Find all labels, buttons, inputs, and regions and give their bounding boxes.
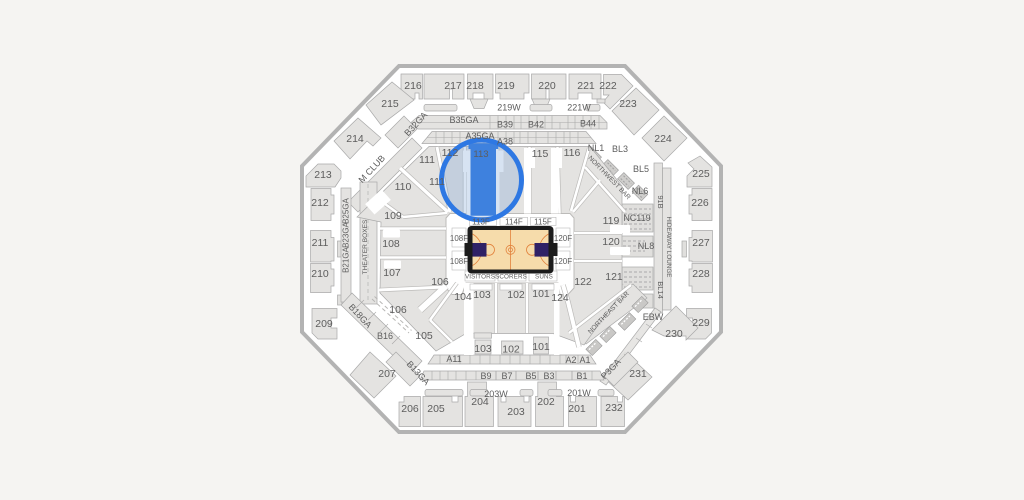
svg-text:108F: 108F (450, 234, 468, 243)
svg-text:207: 207 (378, 368, 396, 380)
svg-text:NC119: NC119 (623, 213, 650, 223)
svg-text:215: 215 (381, 98, 399, 110)
svg-text:106: 106 (389, 304, 407, 316)
svg-text:A11: A11 (446, 354, 461, 364)
svg-text:120F: 120F (554, 257, 572, 266)
svg-text:B21GA: B21GA (342, 246, 351, 272)
svg-text:229: 229 (692, 317, 710, 329)
svg-text:210: 210 (311, 268, 329, 280)
svg-text:111: 111 (429, 176, 445, 188)
svg-text:SUNS: SUNS (535, 274, 553, 281)
svg-text:111: 111 (419, 154, 435, 166)
svg-text:115: 115 (532, 148, 549, 160)
svg-text:103: 103 (474, 343, 492, 355)
svg-text:BL3: BL3 (612, 144, 628, 154)
svg-text:B42: B42 (528, 120, 544, 130)
svg-text:101: 101 (532, 288, 550, 300)
svg-text:B9: B9 (480, 371, 491, 381)
svg-text:102: 102 (502, 344, 520, 356)
svg-text:BL5: BL5 (633, 164, 649, 174)
svg-text:221: 221 (577, 80, 595, 92)
svg-text:227: 227 (692, 237, 710, 249)
svg-text:SCORERS: SCORERS (495, 274, 527, 281)
svg-text:202: 202 (537, 396, 555, 408)
svg-text:218: 218 (466, 80, 484, 92)
svg-text:201: 201 (568, 403, 586, 415)
svg-text:105: 105 (415, 330, 433, 342)
svg-text:220: 220 (538, 80, 556, 92)
svg-text:HIDEAWAY LOUNGE: HIDEAWAY LOUNGE (665, 217, 672, 278)
svg-text:B5: B5 (525, 371, 536, 381)
svg-text:108F: 108F (450, 257, 468, 266)
svg-text:102: 102 (507, 289, 525, 301)
svg-text:110: 110 (395, 181, 412, 193)
svg-text:122: 122 (574, 276, 592, 288)
svg-text:NL8: NL8 (638, 241, 655, 251)
svg-text:203W: 203W (484, 389, 508, 399)
svg-text:B35GA: B35GA (449, 115, 478, 125)
svg-text:NL6: NL6 (632, 186, 649, 196)
svg-text:B16: B16 (377, 331, 393, 341)
svg-text:108: 108 (382, 238, 400, 250)
svg-text:A35GA: A35GA (465, 131, 494, 141)
svg-text:231: 231 (629, 368, 647, 380)
svg-text:113: 113 (473, 149, 488, 160)
svg-text:104: 104 (454, 291, 472, 303)
svg-text:B39: B39 (497, 120, 513, 130)
svg-text:B3: B3 (543, 371, 554, 381)
svg-text:101: 101 (532, 341, 550, 353)
svg-text:121: 121 (605, 271, 623, 283)
svg-text:203: 203 (507, 406, 525, 418)
svg-text:B44: B44 (580, 119, 596, 129)
svg-text:228: 228 (692, 268, 710, 280)
svg-text:120: 120 (602, 236, 620, 248)
svg-text:217: 217 (444, 80, 462, 92)
svg-text:A38: A38 (497, 137, 513, 147)
svg-text:106: 106 (431, 276, 449, 288)
svg-text:230: 230 (665, 328, 683, 340)
svg-text:120F: 120F (554, 234, 572, 243)
svg-text:209: 209 (315, 318, 333, 330)
svg-text:B1: B1 (576, 371, 587, 381)
svg-text:205: 205 (427, 403, 445, 415)
svg-text:109: 109 (384, 210, 402, 222)
svg-text:B7: B7 (501, 371, 512, 381)
svg-text:214: 214 (346, 133, 364, 145)
svg-text:211: 211 (312, 237, 329, 249)
svg-text:232: 232 (605, 402, 623, 414)
svg-text:224: 224 (654, 133, 672, 145)
svg-text:219: 219 (497, 80, 515, 92)
svg-text:223: 223 (619, 98, 637, 110)
svg-text:B25GA: B25GA (342, 197, 351, 223)
svg-text:225: 225 (692, 168, 710, 180)
svg-text:B23GA: B23GA (342, 221, 351, 247)
svg-text:112: 112 (442, 147, 459, 159)
svg-text:219W: 219W (497, 103, 521, 113)
svg-text:NL1: NL1 (588, 143, 605, 153)
svg-text:103: 103 (473, 289, 491, 301)
svg-text:THEATER BOXES: THEATER BOXES (362, 219, 369, 274)
svg-text:221W: 221W (567, 103, 591, 113)
svg-text:91B: 91B (656, 195, 665, 208)
svg-text:EBW: EBW (643, 312, 664, 322)
svg-text:A1: A1 (579, 355, 590, 365)
svg-text:116: 116 (564, 147, 581, 159)
svg-text:226: 226 (691, 197, 709, 209)
svg-text:124: 124 (551, 292, 569, 304)
svg-text:VISITORS: VISITORS (465, 274, 495, 281)
svg-text:201W: 201W (567, 388, 591, 398)
svg-text:216: 216 (404, 80, 422, 92)
svg-text:A2: A2 (565, 355, 576, 365)
svg-text:213: 213 (314, 169, 332, 181)
svg-text:212: 212 (311, 197, 329, 209)
svg-text:107: 107 (383, 267, 401, 279)
svg-text:206: 206 (401, 403, 419, 415)
svg-text:115F: 115F (534, 217, 552, 226)
svg-text:113F: 113F (472, 217, 490, 226)
svg-text:114F: 114F (505, 217, 523, 226)
svg-text:BL14: BL14 (656, 281, 665, 299)
svg-text:222: 222 (599, 80, 617, 92)
svg-text:119: 119 (603, 215, 620, 227)
